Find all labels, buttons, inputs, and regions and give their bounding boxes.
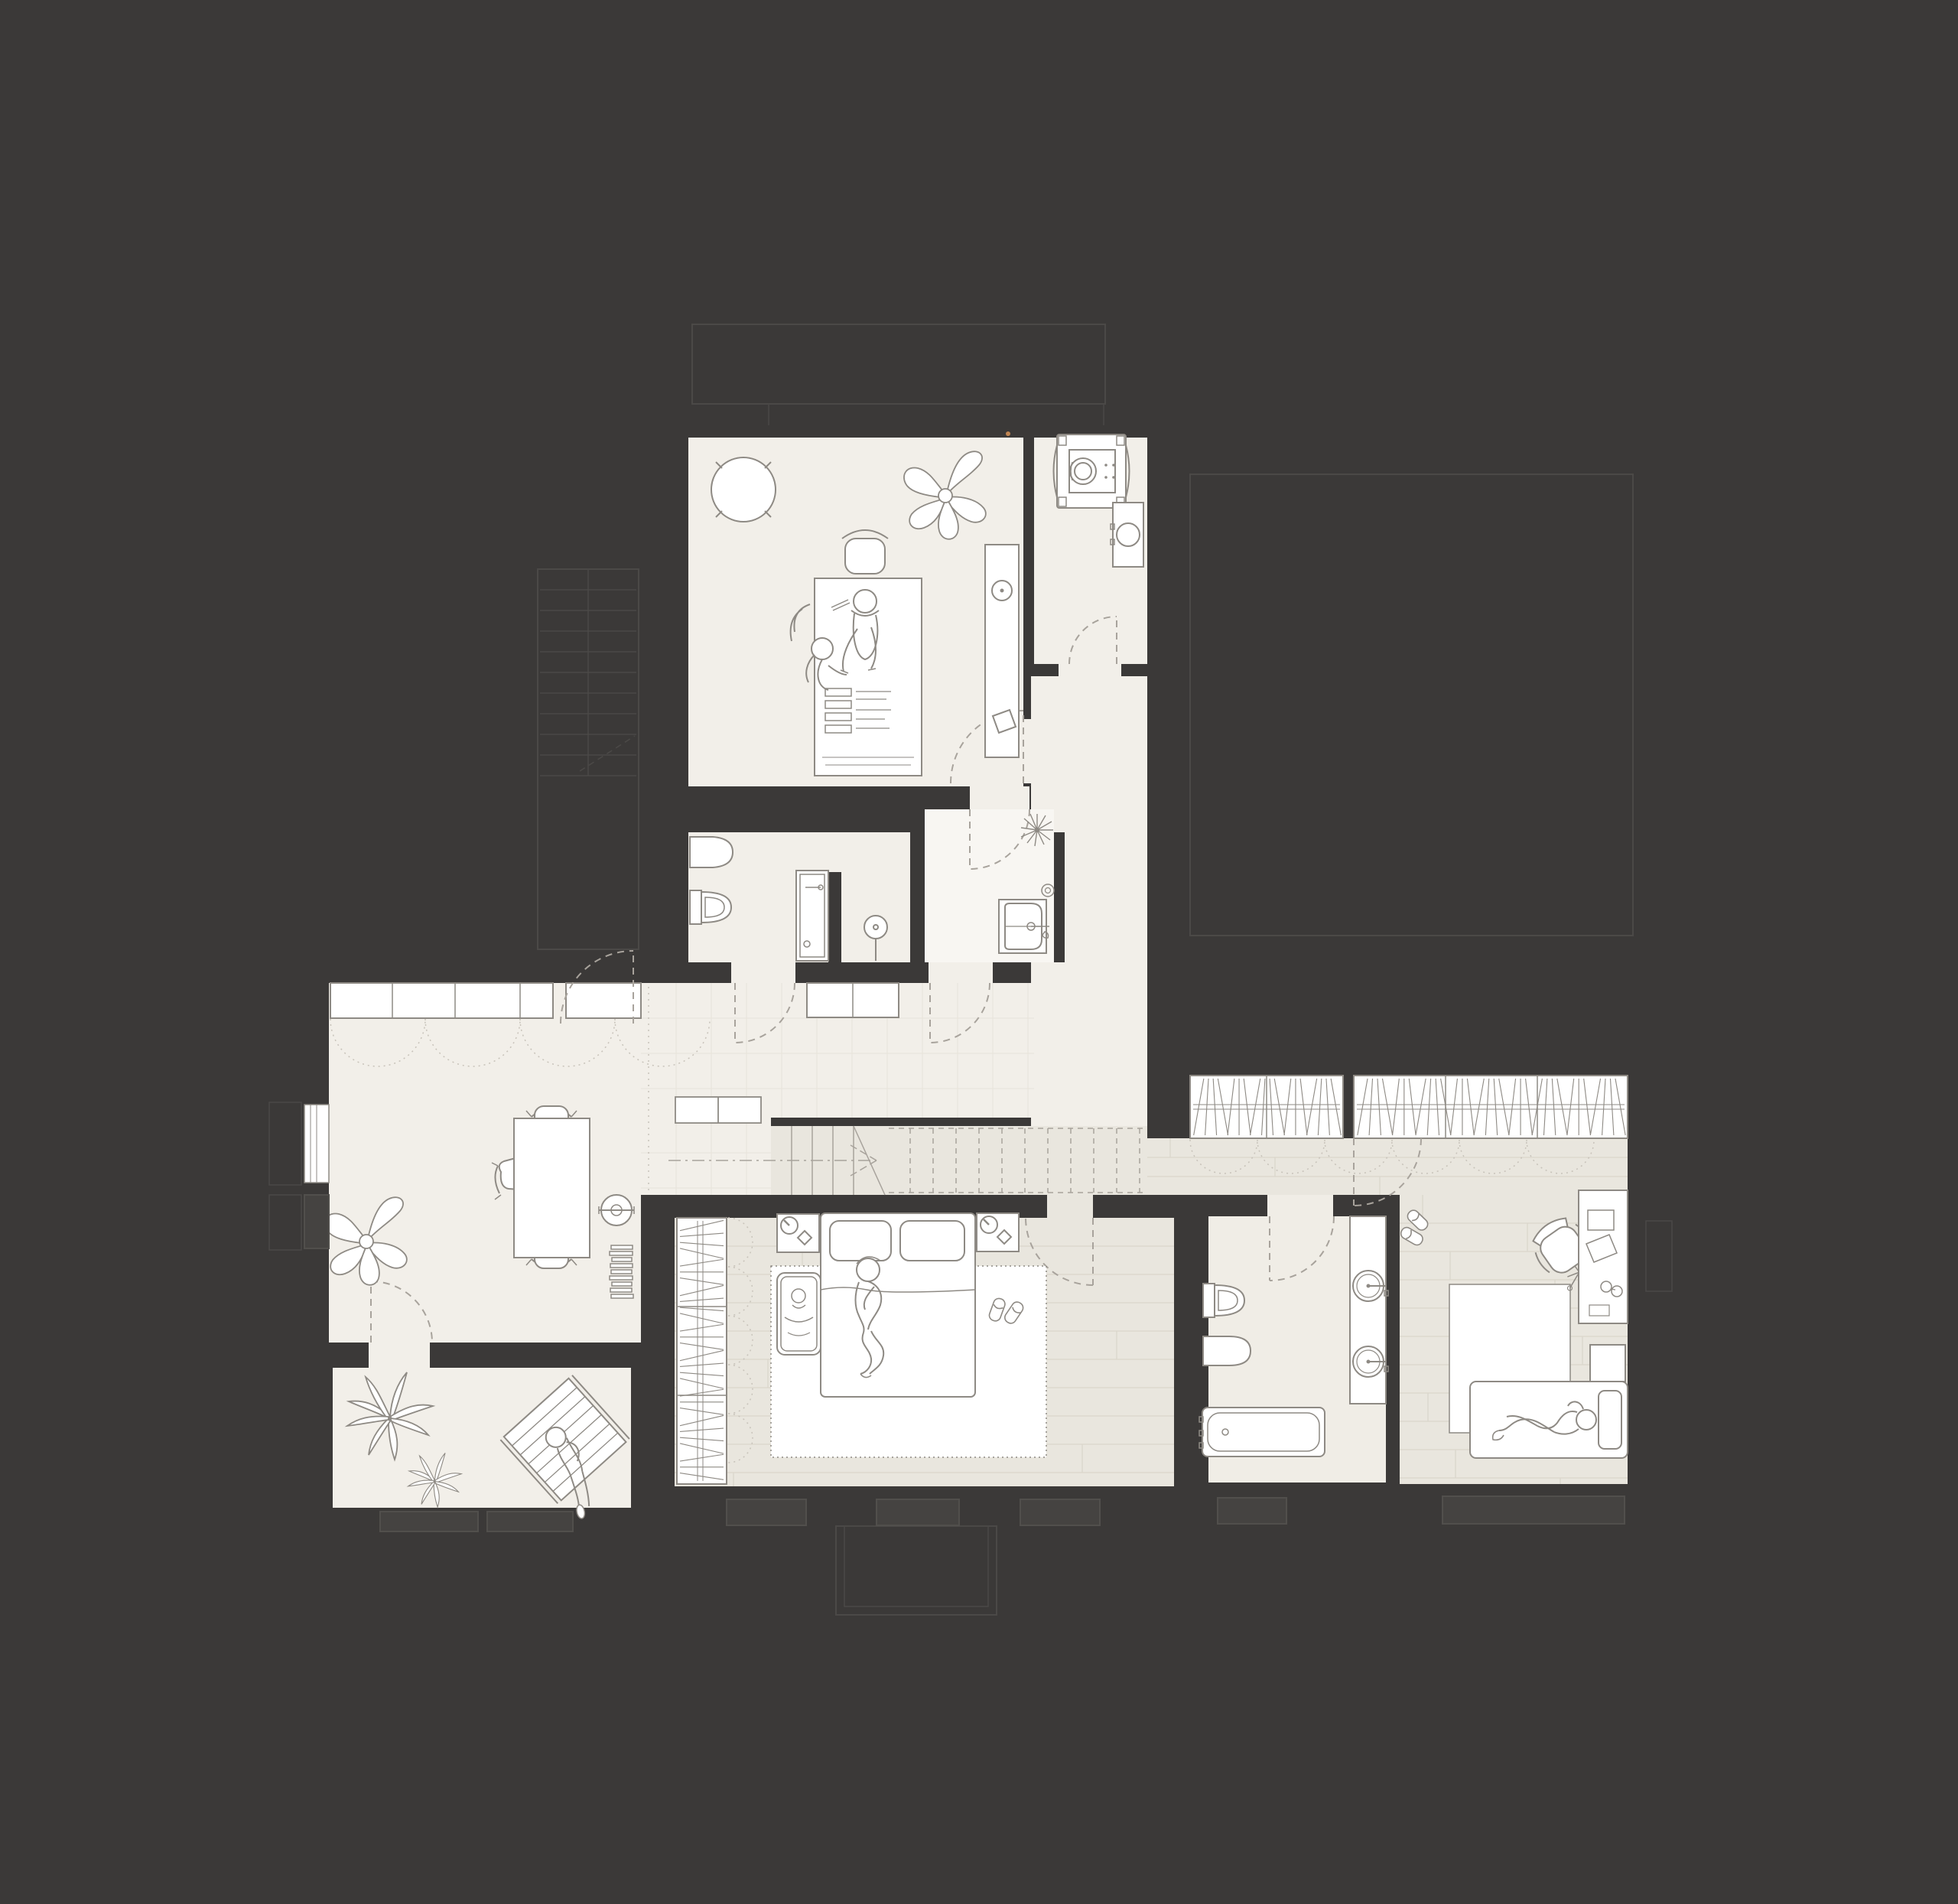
plan-render-root <box>269 324 1672 1615</box>
window-south-2 <box>877 1499 959 1525</box>
threshold-bathroom <box>1267 1195 1333 1216</box>
kitchen-counter2 <box>566 983 641 1018</box>
outline-balcony-south-inner <box>844 1526 988 1606</box>
outline-window-sill-west2 <box>269 1195 301 1250</box>
threshold-terrace <box>369 1343 430 1368</box>
floor-corridor-lower <box>1031 962 1147 1126</box>
window-south-1 <box>727 1499 806 1525</box>
floor-hall-connector <box>1147 1138 1190 1195</box>
floor-plan-svg <box>0 0 1958 1904</box>
window-south-6 <box>380 1512 478 1531</box>
window-west2 <box>304 1195 329 1248</box>
utility-sink <box>1111 503 1143 567</box>
outline-roof-terrace-above <box>692 324 1105 404</box>
baby-crib <box>777 1273 821 1355</box>
floor-corridor-upper <box>1031 676 1147 832</box>
shower-stall <box>796 871 828 961</box>
floor-hall-tiles <box>641 1118 771 1195</box>
threshold-utility <box>1059 664 1121 676</box>
washing-machine <box>1054 435 1130 508</box>
bathroom-bidet <box>1203 1336 1251 1365</box>
threshold-wc <box>731 962 795 983</box>
outline-neighbor-unit <box>1190 474 1633 936</box>
threshold-wc-shower <box>828 832 841 872</box>
outline-window-sill-east <box>1646 1221 1672 1291</box>
nightstand-bedroom2 <box>1590 1345 1625 1382</box>
wardrobe-hall-east <box>1354 1076 1628 1138</box>
window-south-4 <box>1218 1498 1286 1524</box>
floor-plan-canvas <box>0 0 1958 1904</box>
window-south-5 <box>1442 1496 1625 1524</box>
outline-balcony-south <box>836 1526 997 1615</box>
desk-bedroom2 <box>1579 1190 1628 1323</box>
window-south-7 <box>487 1512 573 1531</box>
outline-window-sill-west <box>269 1102 301 1185</box>
threshold-study-east <box>1023 719 1031 783</box>
threshold-master-bedroom <box>1047 1195 1093 1218</box>
nightstand-right <box>977 1213 1019 1251</box>
sideboard <box>675 1097 761 1123</box>
window-south-3 <box>1020 1499 1100 1525</box>
threshold-study-south <box>970 786 1029 809</box>
floor-corridor-mid <box>1065 832 1147 962</box>
bathtub <box>1199 1408 1325 1456</box>
accent-dot <box>1006 431 1010 436</box>
floor-stair <box>771 1126 1147 1195</box>
single-bed-person <box>1470 1382 1628 1458</box>
wc-basin <box>690 837 733 867</box>
floor-hall-east <box>1190 1138 1628 1195</box>
threshold-bath-small <box>929 962 993 983</box>
tall-cabinet <box>985 545 1019 757</box>
nightstand-left <box>777 1214 819 1252</box>
round-table <box>711 457 776 522</box>
book-stack <box>610 1245 633 1298</box>
double-bed-person <box>821 1213 975 1397</box>
